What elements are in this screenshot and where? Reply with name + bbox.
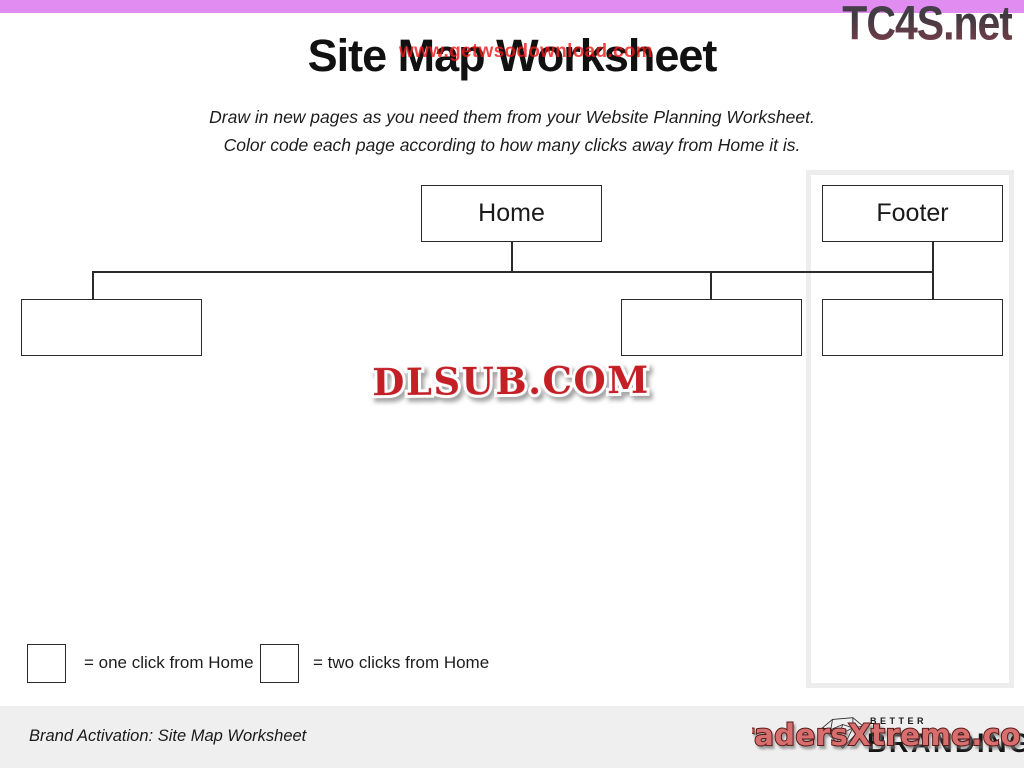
footer-column-frame [806, 170, 1014, 688]
connector-mid-drop [710, 271, 712, 300]
connector-left-drop [92, 271, 94, 300]
instructions: Draw in new pages as you need them from … [0, 103, 1024, 159]
footer-label: Footer [876, 199, 948, 228]
legend-label-two-clicks: = two clicks from Home [313, 653, 489, 673]
home-label: Home [478, 199, 545, 228]
connector-main-horizontal [92, 271, 933, 273]
page-box-empty-left [21, 299, 202, 356]
connector-home-down [511, 242, 513, 272]
watermark-dlsub: DLSUB.COM [363, 353, 659, 413]
connector-footer-drop [932, 242, 934, 300]
instructions-line-1: Draw in new pages as you need them from … [0, 103, 1024, 131]
watermark-tc4s: TC4S.net [842, 0, 1012, 51]
worksheet-page: TC4S.net Site Map Worksheet www.getwsodo… [0, 0, 1024, 768]
watermark-title-overlay: www.getwsodownload.com [399, 41, 653, 63]
legend-label-one-click: = one click from Home [84, 653, 254, 673]
tradersxtreme-text: TradersXtreme.com [752, 718, 1022, 752]
page-box-footer: Footer [822, 185, 1003, 242]
page-box-empty-right [822, 299, 1003, 356]
page-box-empty-middle [621, 299, 802, 356]
worksheet-caption: Brand Activation: Site Map Worksheet [29, 727, 306, 746]
legend-swatch-one-click [27, 644, 66, 683]
watermark-tradersxtreme: TradersXtreme.com [752, 708, 1022, 765]
instructions-line-2: Color code each page according to how ma… [0, 131, 1024, 159]
legend-swatch-two-clicks [260, 644, 299, 683]
page-box-home: Home [421, 185, 602, 242]
dlsub-text: DLSUB.COM [372, 358, 650, 404]
